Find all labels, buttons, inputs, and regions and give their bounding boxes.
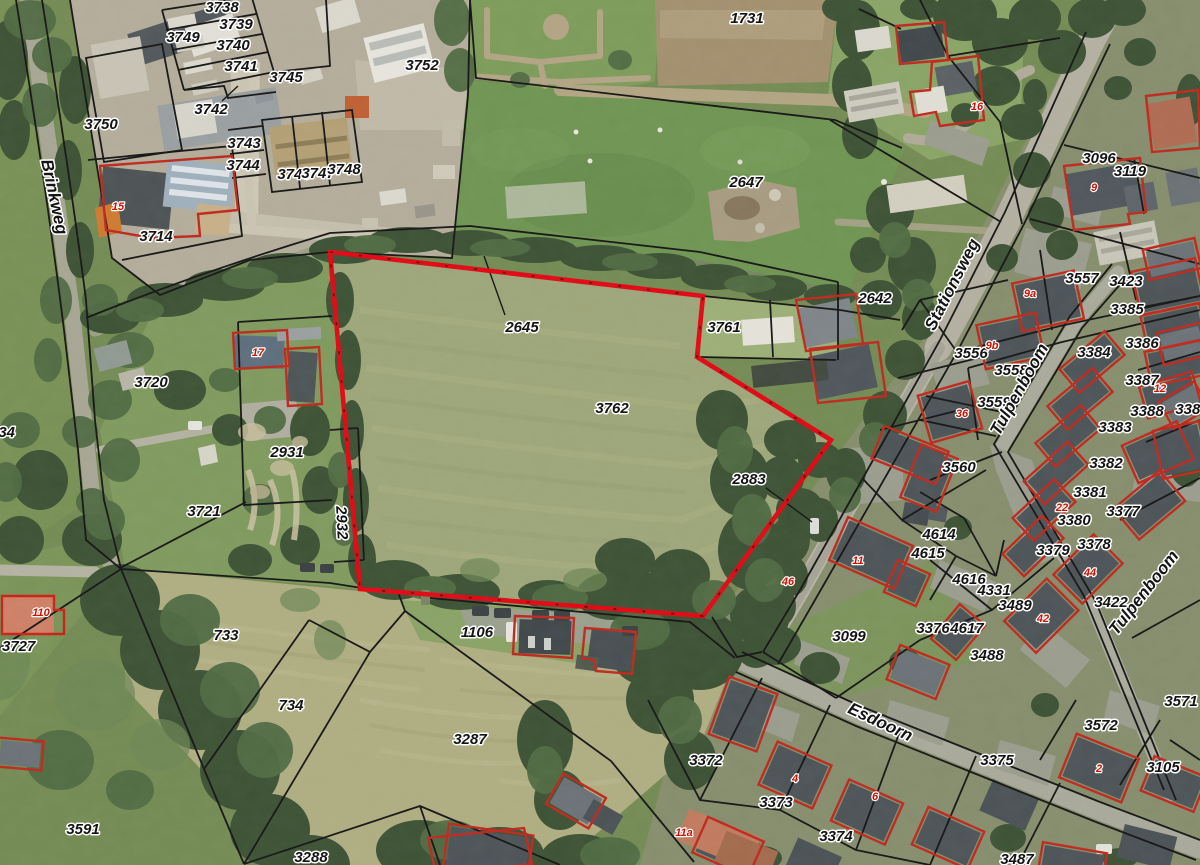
svg-text:9a: 9a (1024, 288, 1036, 300)
svg-text:2: 2 (1095, 763, 1102, 775)
svg-text:3372: 3372 (689, 752, 723, 769)
svg-text:36: 36 (956, 408, 969, 420)
svg-text:2931: 2931 (269, 444, 303, 461)
svg-text:4614: 4614 (921, 526, 956, 543)
svg-text:3099: 3099 (832, 628, 866, 645)
svg-text:3714: 3714 (139, 228, 173, 245)
svg-text:3748: 3748 (327, 161, 361, 178)
svg-text:2883: 2883 (731, 471, 766, 488)
svg-text:3381: 3381 (1073, 484, 1106, 501)
svg-text:3096: 3096 (1082, 150, 1116, 167)
svg-text:4: 4 (791, 773, 798, 785)
svg-text:3488: 3488 (970, 647, 1004, 664)
svg-text:334: 334 (0, 424, 16, 441)
svg-text:3487: 3487 (1000, 851, 1034, 865)
svg-text:2645: 2645 (504, 319, 539, 336)
svg-text:9: 9 (1091, 182, 1098, 194)
svg-text:46: 46 (781, 576, 795, 588)
svg-text:734: 734 (278, 697, 304, 714)
svg-text:2642: 2642 (857, 290, 892, 307)
svg-text:3377: 3377 (1106, 503, 1140, 520)
svg-text:3745: 3745 (269, 69, 303, 86)
svg-text:3749: 3749 (166, 29, 200, 46)
svg-text:110: 110 (32, 607, 50, 619)
svg-text:3384: 3384 (1077, 344, 1111, 361)
svg-text:3288: 3288 (294, 849, 328, 865)
svg-text:3591: 3591 (66, 821, 99, 838)
svg-text:42: 42 (1036, 613, 1049, 625)
svg-text:6: 6 (872, 791, 879, 803)
svg-text:3738: 3738 (205, 0, 239, 16)
svg-text:12: 12 (1154, 383, 1166, 395)
svg-text:3119: 3119 (1114, 163, 1147, 180)
svg-text:3287: 3287 (453, 731, 487, 748)
svg-text:3380: 3380 (1057, 512, 1091, 529)
svg-text:3740: 3740 (216, 37, 250, 54)
svg-text:3557: 3557 (1065, 270, 1099, 287)
svg-text:3379: 3379 (1036, 542, 1070, 559)
svg-text:3742: 3742 (194, 101, 228, 118)
svg-text:3375: 3375 (980, 752, 1014, 769)
svg-text:3378: 3378 (1077, 536, 1111, 553)
svg-text:3741: 3741 (224, 58, 257, 75)
svg-text:2647: 2647 (728, 174, 763, 191)
svg-text:2932: 2932 (332, 505, 351, 541)
svg-text:3383: 3383 (1098, 419, 1132, 436)
svg-text:17: 17 (252, 347, 265, 359)
svg-text:22: 22 (1055, 502, 1068, 514)
svg-text:3385: 3385 (1110, 301, 1144, 318)
svg-text:3376: 3376 (916, 620, 950, 637)
svg-text:3721: 3721 (187, 503, 220, 520)
svg-text:3560: 3560 (942, 459, 976, 476)
svg-text:3388: 3388 (1130, 403, 1164, 420)
svg-text:11a: 11a (675, 827, 693, 839)
svg-text:3739: 3739 (219, 16, 253, 33)
svg-text:3489: 3489 (998, 597, 1032, 614)
svg-text:733: 733 (213, 627, 239, 644)
svg-text:3743: 3743 (227, 135, 261, 152)
svg-text:4615: 4615 (910, 545, 945, 562)
svg-text:3761: 3761 (707, 319, 740, 336)
svg-text:9b: 9b (986, 340, 999, 352)
svg-text:44: 44 (1083, 567, 1096, 579)
svg-text:3373: 3373 (759, 794, 793, 811)
svg-text:3727: 3727 (2, 638, 36, 655)
svg-text:3423: 3423 (1109, 273, 1143, 290)
svg-text:3105: 3105 (1146, 759, 1180, 776)
svg-text:1106: 1106 (461, 624, 494, 641)
svg-text:11: 11 (852, 555, 863, 567)
svg-text:3374: 3374 (819, 828, 853, 845)
svg-text:3750: 3750 (84, 116, 118, 133)
svg-text:3572: 3572 (1084, 717, 1118, 734)
svg-text:4617: 4617 (949, 620, 984, 637)
svg-text:3752: 3752 (405, 57, 439, 74)
svg-text:3556: 3556 (954, 345, 988, 362)
svg-text:3382: 3382 (1089, 455, 1123, 472)
svg-text:3389: 3389 (1175, 401, 1200, 418)
svg-text:15: 15 (112, 201, 125, 213)
svg-text:3744: 3744 (226, 157, 260, 174)
svg-text:16: 16 (971, 101, 984, 113)
svg-text:3386: 3386 (1125, 335, 1159, 352)
svg-text:3720: 3720 (134, 374, 168, 391)
svg-text:1731: 1731 (730, 10, 763, 27)
svg-text:3571: 3571 (1164, 693, 1197, 710)
svg-text:3762: 3762 (595, 400, 629, 417)
